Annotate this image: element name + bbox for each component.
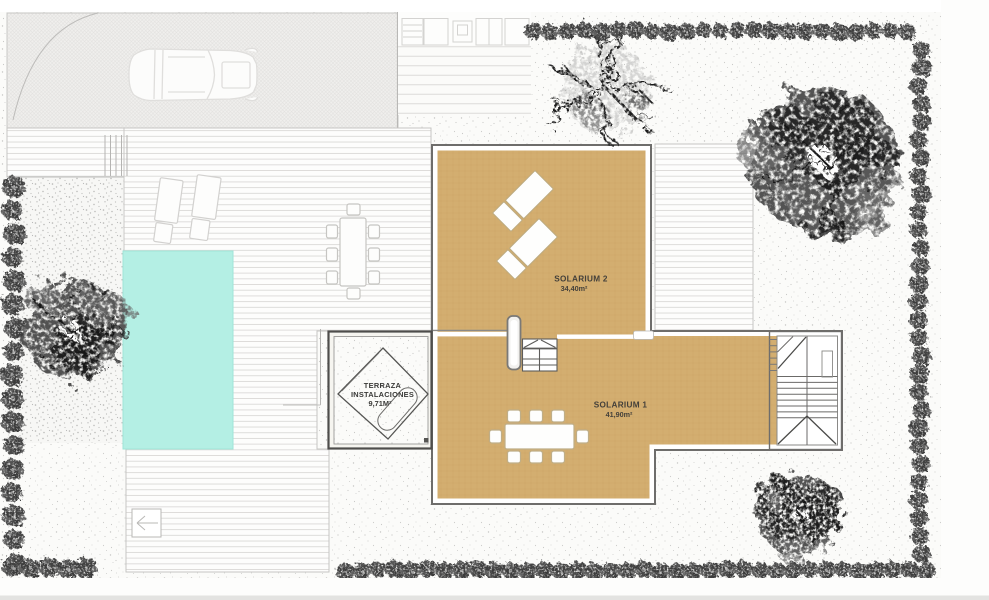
- svg-text:SOLARIUM 2: SOLARIUM 2: [554, 275, 608, 284]
- svg-text:INSTALACIONES: INSTALACIONES: [351, 390, 414, 399]
- svg-text:9,71M²: 9,71M²: [368, 399, 392, 408]
- svg-text:34,40m²: 34,40m²: [561, 284, 588, 293]
- svg-text:SOLARIUM 1: SOLARIUM 1: [594, 401, 648, 410]
- svg-text:41,90m²: 41,90m²: [606, 410, 633, 419]
- svg-text:TERRAZA: TERRAZA: [364, 381, 402, 390]
